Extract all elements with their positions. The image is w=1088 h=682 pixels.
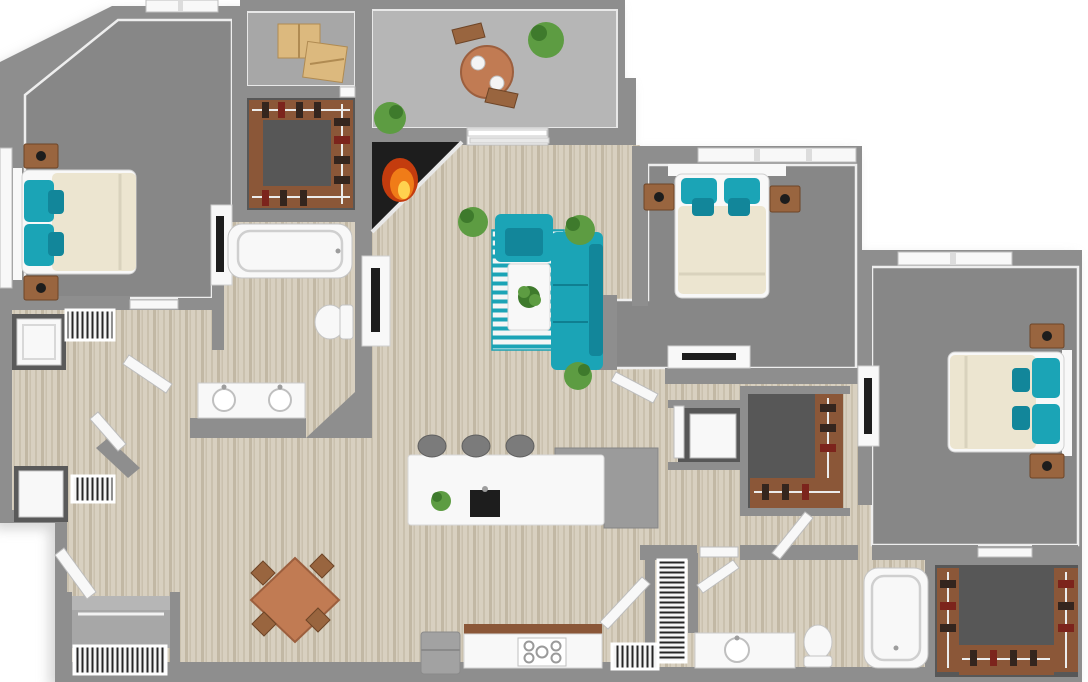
clothes <box>990 650 997 666</box>
refrigerator <box>421 632 460 674</box>
lamp <box>780 194 790 204</box>
door-threshold <box>340 87 355 97</box>
lamp <box>36 151 46 161</box>
pillow-accent <box>48 232 64 256</box>
sink <box>725 638 749 662</box>
wall-segment <box>872 545 978 560</box>
clothes <box>280 190 287 206</box>
pillow <box>1032 404 1060 444</box>
sliding-door-panel <box>470 138 549 143</box>
clothes <box>334 156 350 164</box>
sliding-door-panel <box>468 130 547 136</box>
wall-segment <box>740 386 850 394</box>
wall-segment <box>62 592 72 662</box>
bed-duvet <box>678 206 766 294</box>
shelf <box>249 100 263 208</box>
toilet-bowl <box>804 625 832 659</box>
clothes <box>1058 624 1074 632</box>
air-vent <box>612 644 658 669</box>
door-threshold <box>978 548 1032 557</box>
air-vent <box>72 476 114 502</box>
faucet <box>735 636 740 641</box>
pillow-accent <box>728 198 750 216</box>
pillow-accent <box>692 198 714 216</box>
wall-segment <box>1032 545 1078 560</box>
wall-segment <box>247 86 340 98</box>
lamp <box>654 192 664 202</box>
wall-segment <box>688 553 698 633</box>
plant-leaf <box>578 364 590 376</box>
bed-duvet <box>52 173 136 271</box>
clothes <box>1058 580 1074 588</box>
floor-plan <box>0 0 1088 682</box>
plate <box>490 76 504 90</box>
air-vent <box>74 646 166 674</box>
tv <box>216 216 224 272</box>
window-bedroom-2 <box>698 148 856 162</box>
mullion <box>754 149 760 161</box>
clothes <box>940 580 956 588</box>
wall-segment <box>170 592 180 662</box>
bar-stool <box>506 435 534 457</box>
wall-segment <box>668 462 746 470</box>
bar-stool <box>462 435 490 457</box>
plant-leaf <box>460 209 474 223</box>
island-sink <box>470 490 500 517</box>
water-heater <box>690 414 736 458</box>
bed-headboard <box>13 168 22 280</box>
wall-segment <box>355 0 372 238</box>
lamp <box>1042 461 1052 471</box>
armchair-seat <box>505 228 543 256</box>
plant-leaf <box>566 217 580 231</box>
wall-segment <box>178 298 212 310</box>
clothes <box>334 118 350 126</box>
door-gap-floor <box>858 505 872 545</box>
lamp <box>1042 331 1052 341</box>
wall-segment <box>632 146 648 306</box>
potted-plant <box>374 102 406 134</box>
sofa-back <box>589 244 603 356</box>
clothes <box>1030 650 1037 666</box>
drain <box>894 646 899 651</box>
window-primary-left <box>0 148 12 288</box>
sink <box>213 389 235 411</box>
clothes <box>1058 602 1074 610</box>
closet-door <box>674 406 684 458</box>
toilet-tank <box>804 656 832 667</box>
bar-stool <box>418 435 446 457</box>
floor-plan-stage <box>0 0 1088 682</box>
clothes <box>262 102 269 118</box>
tv <box>371 268 380 332</box>
sink <box>269 389 291 411</box>
mullion <box>178 1 183 11</box>
wall-segment <box>212 210 355 222</box>
clothes <box>820 404 836 412</box>
tv <box>864 378 872 434</box>
wall-segment <box>740 508 850 516</box>
wall-segment <box>665 368 858 384</box>
flame <box>398 181 410 199</box>
patio-table <box>461 46 513 98</box>
plant-leaf <box>389 105 403 119</box>
clothes <box>940 602 956 610</box>
wall-segment <box>740 545 858 560</box>
clothes <box>820 444 836 452</box>
pillow-accent <box>1012 406 1030 430</box>
kitchen-island <box>408 455 604 525</box>
mullion <box>950 253 956 264</box>
pillow-accent <box>1012 368 1030 392</box>
wall-segment <box>232 6 247 222</box>
plant-leaf <box>518 286 530 298</box>
clothes <box>300 190 307 206</box>
plant-leaf <box>531 25 547 41</box>
plate <box>471 56 485 70</box>
dryer <box>19 471 63 517</box>
faucet <box>222 385 227 390</box>
wall-segment <box>190 418 306 438</box>
faucet <box>482 486 488 492</box>
door-threshold <box>700 547 738 557</box>
clothes <box>262 190 269 206</box>
air-vent <box>66 310 114 340</box>
clothes <box>278 102 285 118</box>
drain <box>336 249 341 254</box>
air-vent-tall <box>658 560 686 662</box>
plant-leaf <box>432 492 442 502</box>
lamp <box>36 283 46 293</box>
clothes <box>296 102 303 118</box>
faucet <box>278 385 283 390</box>
clothes <box>314 102 321 118</box>
door-threshold <box>130 300 178 309</box>
wall-segment <box>0 296 130 310</box>
plant-leaf <box>529 294 541 306</box>
mullion <box>806 149 812 161</box>
clothes <box>334 136 350 144</box>
clothes <box>762 484 769 500</box>
clothes <box>782 484 789 500</box>
clothes <box>802 484 809 500</box>
toilet-tank <box>340 305 353 339</box>
clothes <box>334 176 350 184</box>
clothes <box>1010 650 1017 666</box>
tv <box>682 353 736 360</box>
clothes <box>940 624 956 632</box>
pillow-accent <box>48 190 64 214</box>
pillow <box>1032 358 1060 398</box>
utility-closet <box>674 406 736 458</box>
clothes <box>820 424 836 432</box>
clothes <box>970 650 977 666</box>
